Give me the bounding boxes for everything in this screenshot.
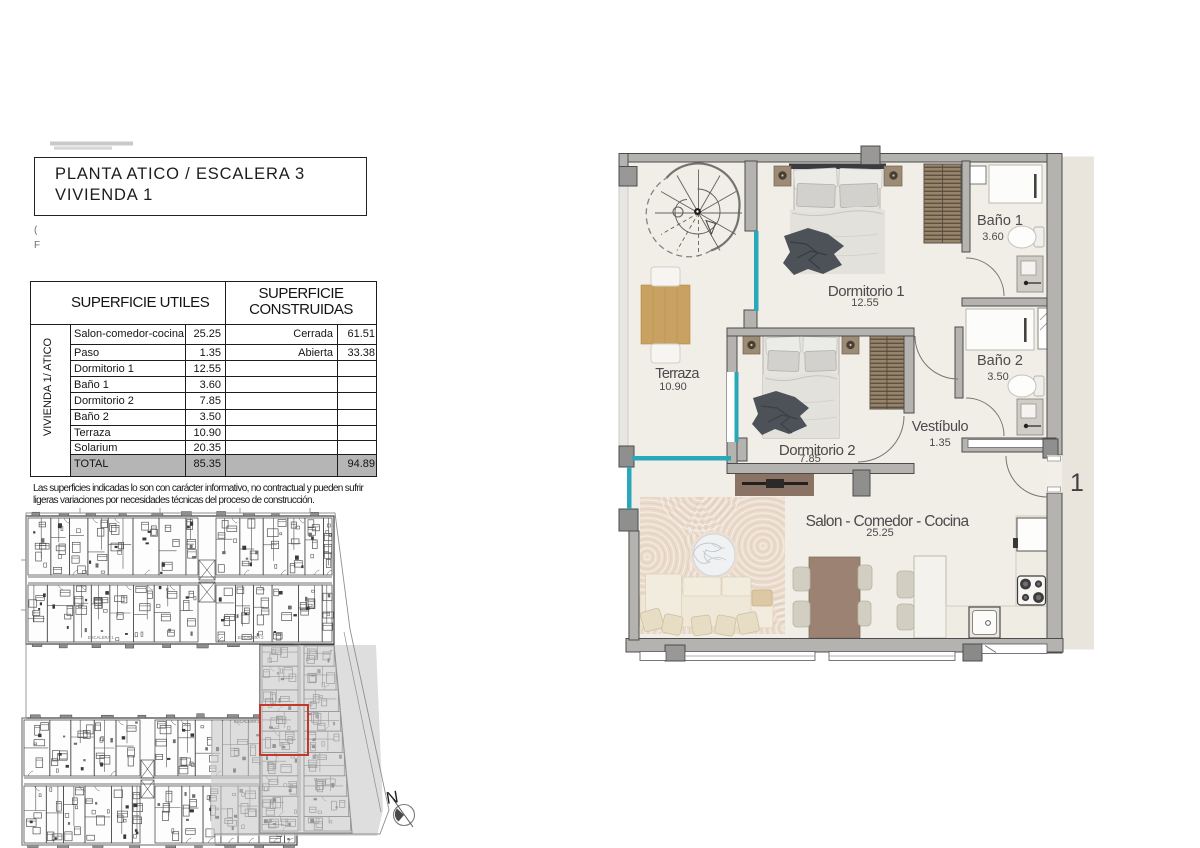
svg-text:ESCALERA 3: ESCALERA 3: [234, 719, 260, 724]
svg-text:10.90: 10.90: [659, 381, 687, 393]
svg-text:12.55: 12.55: [851, 297, 879, 309]
svg-text:ESCALERA 1: ESCALERA 1: [88, 635, 114, 640]
svg-text:7.85: 7.85: [799, 453, 820, 465]
svg-text:Vestíbulo: Vestíbulo: [912, 419, 969, 435]
svg-text:N: N: [385, 787, 400, 808]
svg-text:1.35: 1.35: [929, 437, 950, 449]
svg-text:25.25: 25.25: [866, 527, 894, 539]
svg-text:1: 1: [1070, 469, 1084, 497]
svg-text:3.60: 3.60: [982, 231, 1003, 243]
svg-text:Terraza: Terraza: [655, 366, 700, 382]
svg-text:ESCALERA 2: ESCALERA 2: [238, 635, 264, 640]
svg-text:Baño 2: Baño 2: [977, 353, 1023, 369]
svg-text:Baño 1: Baño 1: [977, 213, 1023, 229]
svg-text:3.50: 3.50: [987, 371, 1008, 383]
